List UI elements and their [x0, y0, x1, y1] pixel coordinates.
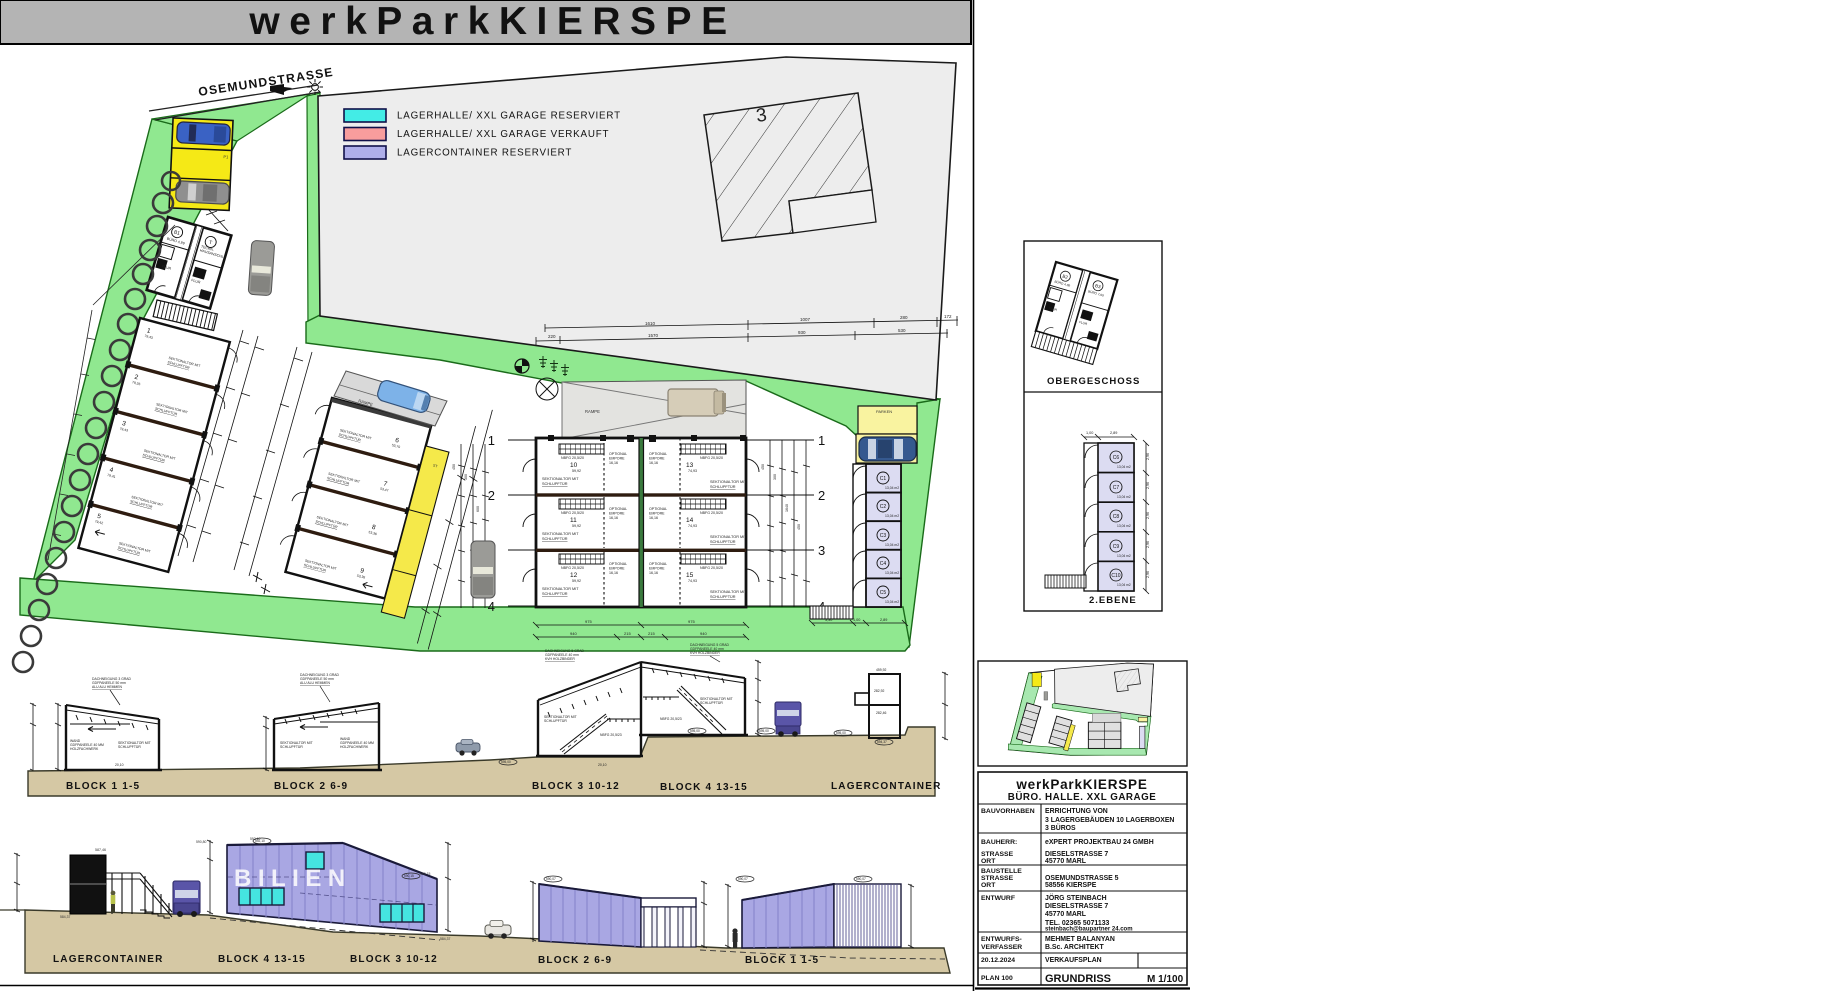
svg-text:C2: C2 — [880, 504, 887, 510]
svg-text:590,15: 590,15 — [404, 874, 414, 878]
svg-text:LAGERHALLE/ XXL GARAGE VERKAUF: LAGERHALLE/ XXL GARAGE VERKAUFT — [397, 129, 609, 140]
svg-text:16,16: 16,16 — [609, 516, 618, 520]
svg-text:2: 2 — [818, 488, 825, 503]
svg-text:MEHMET BALANYAN: MEHMET BALANYAN — [1045, 936, 1115, 943]
svg-text:KVH HOLZBINDER: KVH HOLZBINDER — [690, 651, 720, 655]
svg-text:C7: C7 — [1113, 485, 1120, 491]
svg-text:282,92: 282,92 — [874, 689, 884, 693]
svg-text:RAMPE: RAMPE — [585, 409, 600, 414]
svg-text:C10: C10 — [1111, 573, 1120, 579]
svg-text:459,92: 459,92 — [876, 668, 886, 672]
svg-text:SEKTIONALTOR MIT: SEKTIONALTOR MIT — [542, 587, 579, 591]
svg-text:BLOCK 1 1-5: BLOCK 1 1-5 — [745, 955, 819, 966]
svg-text:GRUNDRISS: GRUNDRISS — [1045, 973, 1111, 985]
svg-text:SCHLUPFTÜR: SCHLUPFTÜR — [118, 745, 141, 749]
svg-text:215: 215 — [624, 631, 631, 636]
svg-text:SCHLUPFTÜR: SCHLUPFTÜR — [542, 482, 568, 486]
svg-text:595,00: 595,00 — [836, 731, 846, 735]
svg-text:STRASSE: STRASSE — [981, 851, 1014, 858]
svg-text:584,37: 584,37 — [440, 937, 450, 941]
svg-text:DIESELSTRASSE 7: DIESELSTRASSE 7 — [1045, 903, 1108, 910]
svg-text:4: 4 — [488, 599, 495, 614]
svg-text:SEKTIONALTOR MIT: SEKTIONALTOR MIT — [710, 480, 747, 484]
svg-text:EMPORE: EMPORE — [649, 512, 665, 516]
svg-text:M 1/100: M 1/100 — [1147, 974, 1184, 985]
svg-text:VERFASSER: VERFASSER — [981, 944, 1022, 951]
svg-text:300: 300 — [464, 474, 468, 480]
svg-text:HOLZFACHWERK: HOLZFACHWERK — [70, 747, 99, 751]
svg-text:450: 450 — [797, 524, 801, 530]
svg-text:NBFG 20,5/20: NBFG 20,5/20 — [561, 456, 584, 460]
svg-text:SEKTIONALTOR MIT: SEKTIONALTOR MIT — [710, 590, 747, 594]
svg-text:1570: 1570 — [648, 333, 659, 338]
svg-text:975: 975 — [688, 619, 695, 624]
svg-text:595,00: 595,00 — [501, 760, 511, 764]
svg-text:NBFG 20,5/20: NBFG 20,5/20 — [561, 566, 584, 570]
svg-text:LAGERCONTAINER: LAGERCONTAINER — [831, 781, 942, 792]
svg-text:300: 300 — [773, 474, 777, 480]
svg-text:BLOCK 2 6-9: BLOCK 2 6-9 — [538, 955, 612, 966]
svg-text:12: 12 — [570, 572, 578, 579]
svg-text:13,04 m2: 13,04 m2 — [885, 571, 899, 575]
svg-text:1: 1 — [818, 433, 825, 448]
svg-text:1640: 1640 — [785, 504, 789, 512]
svg-text:EMPORE: EMPORE — [609, 567, 625, 571]
svg-text:C4: C4 — [880, 561, 887, 567]
svg-text:C3: C3 — [880, 533, 887, 539]
svg-text:OBERGESCHOSS: OBERGESCHOSS — [1047, 376, 1140, 387]
svg-text:PARKEN: PARKEN — [876, 409, 892, 414]
svg-text:OSEMUNDSTRASSE 5: OSEMUNDSTRASSE 5 — [1045, 875, 1119, 882]
svg-text:13,04 m2: 13,04 m2 — [1117, 554, 1131, 558]
svg-text:NBFG 20,5/20: NBFG 20,5/20 — [700, 566, 723, 570]
svg-text:BLOCK 4 13-15: BLOCK 4 13-15 — [660, 782, 748, 793]
svg-text:PLAN 100: PLAN 100 — [981, 975, 1013, 982]
svg-text:13,04 m2: 13,04 m2 — [1117, 465, 1131, 469]
svg-text:14: 14 — [686, 517, 694, 524]
svg-text:ENTWURF: ENTWURF — [981, 895, 1015, 902]
svg-text:SEKTIONALTOR MIT: SEKTIONALTOR MIT — [710, 535, 747, 539]
svg-text:BILIEN: BILIEN — [234, 865, 352, 892]
svg-text:ERRICHTUNG VON: ERRICHTUNG VON — [1045, 808, 1108, 815]
svg-text:JÖRG STEINBACH: JÖRG STEINBACH — [1045, 893, 1107, 902]
svg-text:3,30: 3,30 — [825, 618, 832, 622]
svg-text:280: 280 — [900, 315, 908, 320]
svg-text:590,80: 590,80 — [196, 840, 206, 844]
svg-text:NBFG 20,5/20: NBFG 20,5/20 — [700, 456, 723, 460]
svg-text:eXPERT PROJEKTBAU 24 GMBH: eXPERT PROJEKTBAU 24 GMBH — [1045, 839, 1154, 846]
svg-text:172: 172 — [944, 314, 952, 319]
svg-text:NBFG 20,5/23: NBFG 20,5/23 — [600, 733, 622, 737]
svg-text:74,93: 74,93 — [688, 469, 697, 473]
svg-text:OPTIONAL: OPTIONAL — [649, 452, 667, 456]
svg-text:975: 975 — [585, 619, 592, 624]
svg-text:ORT: ORT — [981, 882, 996, 889]
svg-text:EMPORE: EMPORE — [649, 567, 665, 571]
svg-text:13,04 m2: 13,04 m2 — [1117, 583, 1131, 587]
svg-text:B.Sc. ARCHITEKT: B.Sc. ARCHITEKT — [1045, 944, 1104, 951]
svg-text:930: 930 — [798, 330, 806, 335]
svg-text:SCHLUPFTÜR: SCHLUPFTÜR — [710, 595, 736, 599]
svg-text:BLOCK 2 6-9: BLOCK 2 6-9 — [274, 781, 348, 792]
svg-text:20,10: 20,10 — [598, 763, 607, 767]
svg-text:BAUSTELLE: BAUSTELLE — [981, 868, 1022, 875]
svg-text:SCHLUPFTÜR: SCHLUPFTÜR — [280, 745, 303, 749]
svg-text:592,10: 592,10 — [255, 839, 265, 843]
svg-text:1007: 1007 — [800, 317, 811, 322]
svg-text:OPTIONAL: OPTIONAL — [609, 452, 627, 456]
svg-text:STRASSE: STRASSE — [981, 875, 1014, 882]
svg-text:530: 530 — [898, 328, 906, 333]
svg-text:SEKTIONALTOR MIT: SEKTIONALTOR MIT — [542, 477, 579, 481]
svg-text:1,00: 1,00 — [853, 618, 860, 622]
svg-text:58556 KIERSPE: 58556 KIERSPE — [1045, 882, 1097, 889]
svg-text:werkParkKIERSPE: werkParkKIERSPE — [248, 0, 736, 43]
svg-text:13,04 m2: 13,04 m2 — [885, 514, 899, 518]
svg-text:450: 450 — [761, 464, 765, 470]
svg-text:3 BÜROS: 3 BÜROS — [1045, 823, 1076, 832]
svg-text:590,07: 590,07 — [738, 877, 748, 881]
svg-text:C8: C8 — [1113, 514, 1120, 520]
svg-text:1,00: 1,00 — [1086, 431, 1093, 435]
svg-text:13,04 m2: 13,04 m2 — [885, 600, 899, 604]
svg-text:ORT: ORT — [981, 858, 996, 865]
svg-text:595,00: 595,00 — [759, 729, 769, 733]
svg-text:OPTIONAL: OPTIONAL — [609, 562, 627, 566]
svg-text:2,96: 2,96 — [1146, 453, 1150, 460]
svg-text:16,16: 16,16 — [649, 571, 658, 575]
svg-text:werkParkKIERSPE: werkParkKIERSPE — [1015, 777, 1147, 792]
svg-text:C9: C9 — [1113, 544, 1120, 550]
svg-text:16,16: 16,16 — [609, 571, 618, 575]
svg-text:59,92: 59,92 — [572, 469, 581, 473]
svg-text:BLOCK 4 13-15: BLOCK 4 13-15 — [218, 954, 306, 965]
svg-text:steinbach@baupartner 24.com: steinbach@baupartner 24.com — [1045, 927, 1133, 933]
svg-text:SCHLUPFTÜR: SCHLUPFTÜR — [542, 592, 568, 596]
svg-text:220: 220 — [548, 334, 556, 339]
svg-text:EMPORE: EMPORE — [649, 457, 665, 461]
svg-text:595,00: 595,00 — [690, 729, 700, 733]
svg-text:74,93: 74,93 — [688, 579, 697, 583]
svg-text:DIESELSTRASSE 7: DIESELSTRASSE 7 — [1045, 851, 1108, 858]
svg-text:NBFG 20,5/20: NBFG 20,5/20 — [700, 511, 723, 515]
svg-text:2,96: 2,96 — [1146, 541, 1150, 548]
svg-text:C1: C1 — [880, 476, 887, 482]
svg-text:SEKTIONALTOR MIT: SEKTIONALTOR MIT — [542, 532, 579, 536]
svg-text:2,89: 2,89 — [1110, 431, 1117, 435]
svg-text:SCHLUPFTÜR: SCHLUPFTÜR — [710, 540, 736, 544]
svg-text:ALU ALU HEMMEN: ALU ALU HEMMEN — [92, 685, 123, 689]
svg-text:20,10: 20,10 — [115, 763, 124, 767]
svg-text:OPTIONAL: OPTIONAL — [609, 507, 627, 511]
svg-text:590,15: 590,15 — [420, 872, 430, 876]
svg-text:16,16: 16,16 — [649, 461, 658, 465]
svg-text:SCHLUPFTÜR: SCHLUPFTÜR — [544, 719, 567, 723]
svg-text:590,07: 590,07 — [546, 877, 556, 881]
svg-text:10: 10 — [570, 462, 578, 469]
svg-text:450: 450 — [452, 464, 456, 470]
svg-text:OPTIONAL: OPTIONAL — [649, 507, 667, 511]
svg-text:215: 215 — [648, 631, 655, 636]
svg-text:16,16: 16,16 — [609, 461, 618, 465]
svg-text:13,04 m2: 13,04 m2 — [885, 486, 899, 490]
svg-text:C5: C5 — [880, 590, 887, 596]
svg-text:2,96: 2,96 — [1146, 571, 1150, 578]
svg-text:59,92: 59,92 — [572, 524, 581, 528]
svg-text:3: 3 — [818, 543, 825, 558]
svg-text:590,07: 590,07 — [856, 877, 866, 881]
svg-text:16,16: 16,16 — [649, 516, 658, 520]
svg-text:LAGERHALLE/ XXL GARAGE RESERVI: LAGERHALLE/ XXL GARAGE RESERVIERT — [397, 111, 621, 122]
svg-text:940: 940 — [700, 631, 707, 636]
svg-text:13,04 m2: 13,04 m2 — [1117, 495, 1131, 499]
svg-text:2,96: 2,96 — [1146, 482, 1150, 489]
svg-text:587,46: 587,46 — [95, 848, 106, 852]
svg-text:SCHLUPFTÜR: SCHLUPFTÜR — [700, 701, 723, 705]
svg-text:BLOCK 3 10-12: BLOCK 3 10-12 — [350, 954, 438, 965]
svg-text:BLOCK 1 1-5: BLOCK 1 1-5 — [66, 781, 140, 792]
svg-text:594,37: 594,37 — [877, 740, 887, 744]
svg-text:SCHLUPFTÜR: SCHLUPFTÜR — [710, 485, 736, 489]
svg-text:282,46: 282,46 — [876, 711, 886, 715]
svg-text:NBFG 20,5/23: NBFG 20,5/23 — [660, 717, 682, 721]
svg-text:BAUHERR:: BAUHERR: — [981, 839, 1017, 846]
svg-text:OPTIONAL: OPTIONAL — [649, 562, 667, 566]
svg-text:2: 2 — [488, 488, 495, 503]
svg-text:KVH HOLZBINDER: KVH HOLZBINDER — [545, 657, 575, 661]
svg-text:3 LAGERGEBÄUDEN 10 LAGERBOXE: 3 LAGERGEBÄUDEN 10 LAGERBOXEN — [1045, 816, 1174, 824]
svg-text:13,04 m2: 13,04 m2 — [885, 543, 899, 547]
svg-text:15: 15 — [686, 572, 694, 579]
svg-text:940: 940 — [570, 631, 577, 636]
svg-text:ENTWURFS-: ENTWURFS- — [981, 936, 1022, 943]
svg-text:600: 600 — [476, 506, 480, 512]
svg-text:20.12.2024: 20.12.2024 — [981, 957, 1015, 964]
svg-text:HOLZFACHWERK: HOLZFACHWERK — [340, 745, 369, 749]
svg-text:BAUVORHABEN: BAUVORHABEN — [981, 808, 1035, 815]
svg-text:2,89: 2,89 — [880, 618, 887, 622]
svg-text:LAGERCONTAINER: LAGERCONTAINER — [53, 954, 164, 965]
svg-text:584,37: 584,37 — [60, 915, 70, 919]
svg-text:BLOCK 3 10-12: BLOCK 3 10-12 — [532, 781, 620, 792]
svg-text:11: 11 — [570, 517, 577, 524]
svg-text:59,92: 59,92 — [572, 579, 581, 583]
svg-text:VERKAUFSPLAN: VERKAUFSPLAN — [1045, 957, 1102, 964]
svg-text:SCHLUPFTÜR: SCHLUPFTÜR — [542, 537, 568, 541]
svg-text:EMPORE: EMPORE — [609, 457, 625, 461]
svg-text:74,93: 74,93 — [688, 524, 697, 528]
svg-text:2.EBENE: 2.EBENE — [1089, 595, 1137, 606]
svg-text:45770 MARL: 45770 MARL — [1045, 911, 1086, 918]
svg-text:2,96: 2,96 — [1146, 512, 1150, 519]
svg-text:C6: C6 — [1113, 455, 1120, 461]
svg-text:BÜRO. HALLE. XXL GARAGE: BÜRO. HALLE. XXL GARAGE — [1008, 792, 1156, 803]
svg-text:EMPORE: EMPORE — [609, 512, 625, 516]
svg-text:1610: 1610 — [645, 321, 656, 326]
svg-text:1: 1 — [488, 433, 495, 448]
svg-text:LAGERCONTAINER RESERVIERT: LAGERCONTAINER RESERVIERT — [397, 148, 572, 159]
svg-text:13,04 m2: 13,04 m2 — [1117, 524, 1131, 528]
svg-text:45770 MARL: 45770 MARL — [1045, 858, 1086, 865]
svg-text:NBFG 20,5/20: NBFG 20,5/20 — [561, 511, 584, 515]
svg-text:ALU ALU HEMMEN: ALU ALU HEMMEN — [300, 681, 331, 685]
svg-text:13: 13 — [686, 462, 694, 469]
